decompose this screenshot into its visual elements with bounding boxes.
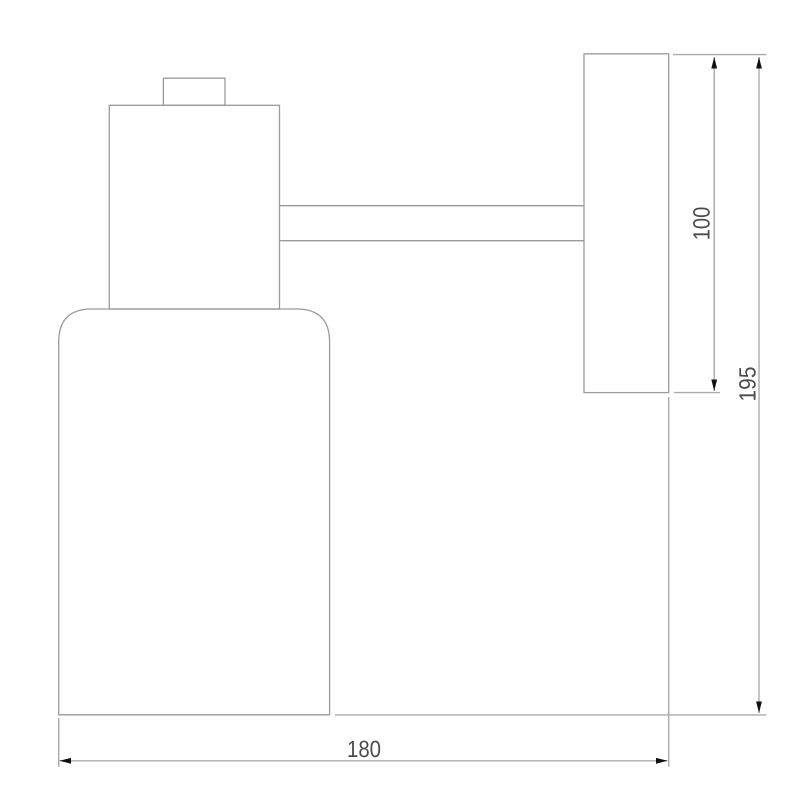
svg-text:180: 180 (347, 736, 381, 762)
svg-text:195: 195 (734, 367, 760, 402)
svg-text:100: 100 (689, 207, 715, 241)
